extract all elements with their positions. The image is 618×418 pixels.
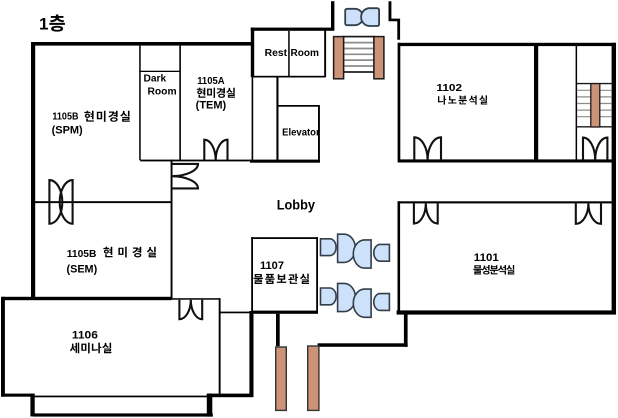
svg-text:1102: 1102 — [436, 82, 462, 94]
svg-text:1: 1 — [39, 14, 48, 33]
svg-text:1107: 1107 — [260, 260, 284, 272]
svg-text:1105A: 1105A — [197, 76, 224, 87]
svg-text:1101: 1101 — [474, 252, 499, 264]
svg-text:1105B: 1105B — [67, 248, 97, 260]
svg-text:Dark: Dark — [144, 74, 167, 85]
svg-text:(TEM): (TEM) — [196, 99, 227, 111]
svg-text:(SEM): (SEM) — [67, 263, 98, 275]
svg-text:1106: 1106 — [72, 330, 98, 342]
svg-text:1105B: 1105B — [52, 111, 78, 123]
svg-text:Lobby: Lobby — [277, 197, 316, 212]
svg-text:Room: Room — [291, 47, 319, 59]
svg-text:Rest: Rest — [265, 47, 288, 59]
svg-text:(SPM): (SPM) — [52, 125, 83, 137]
svg-text:Elevator: Elevator — [282, 126, 320, 138]
svg-text:Room: Room — [148, 87, 177, 98]
